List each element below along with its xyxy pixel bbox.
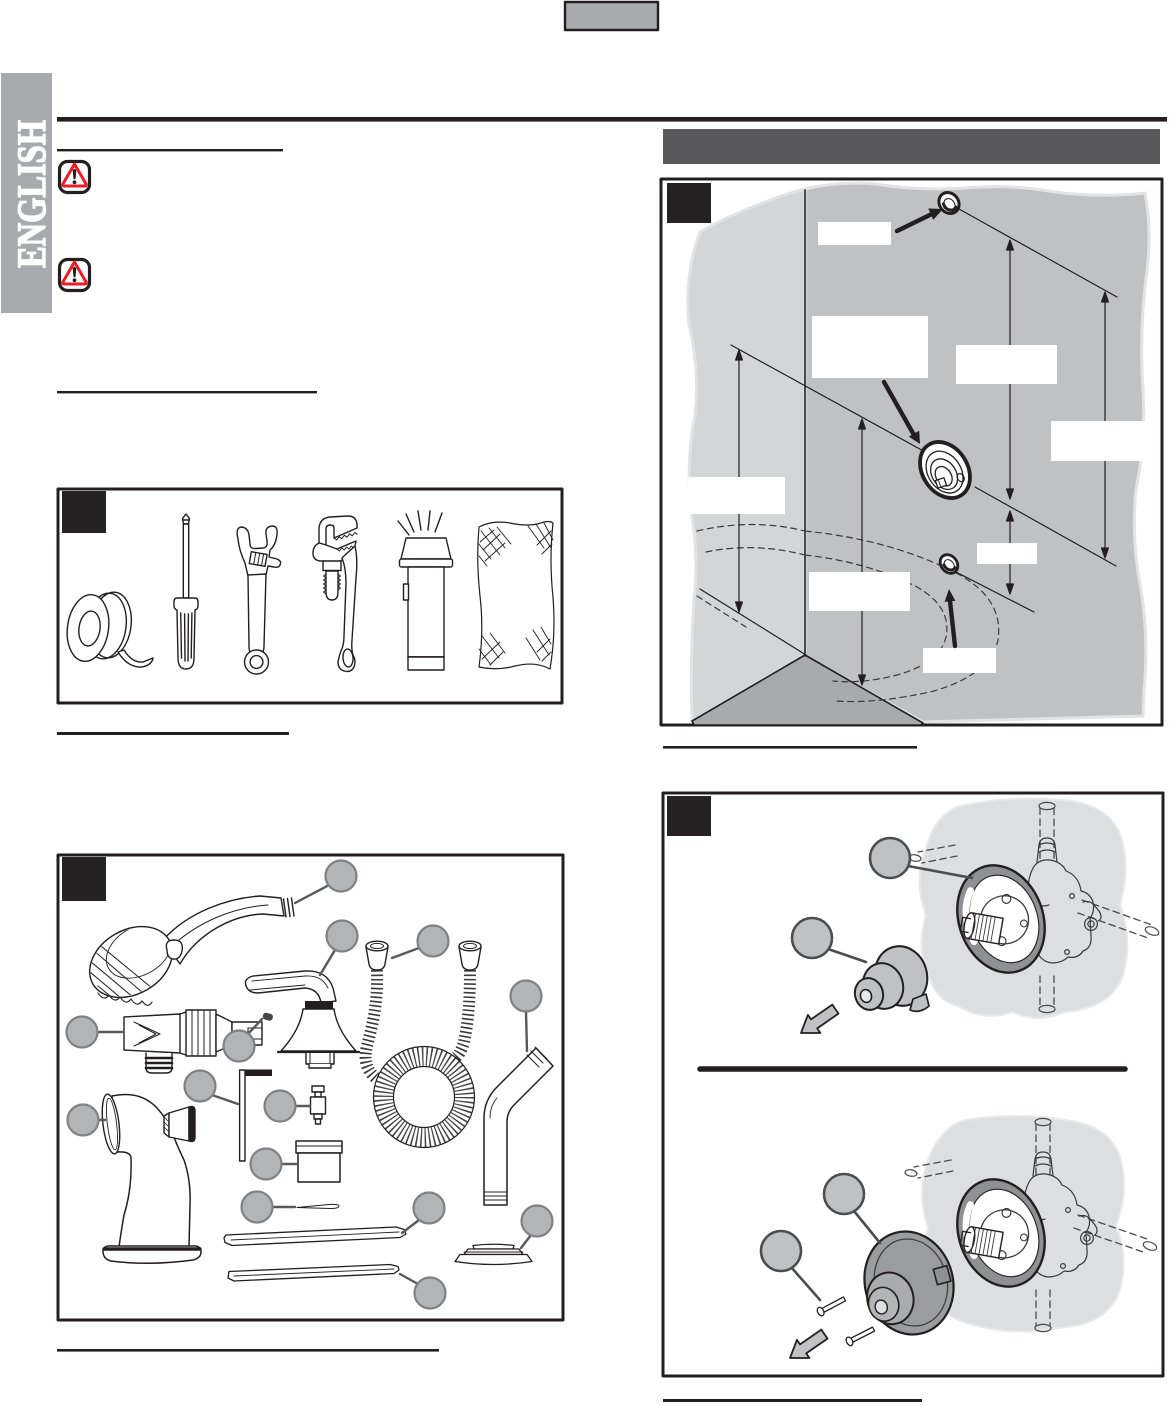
svg-text:ENGLISH: ENGLISH: [9, 120, 54, 268]
